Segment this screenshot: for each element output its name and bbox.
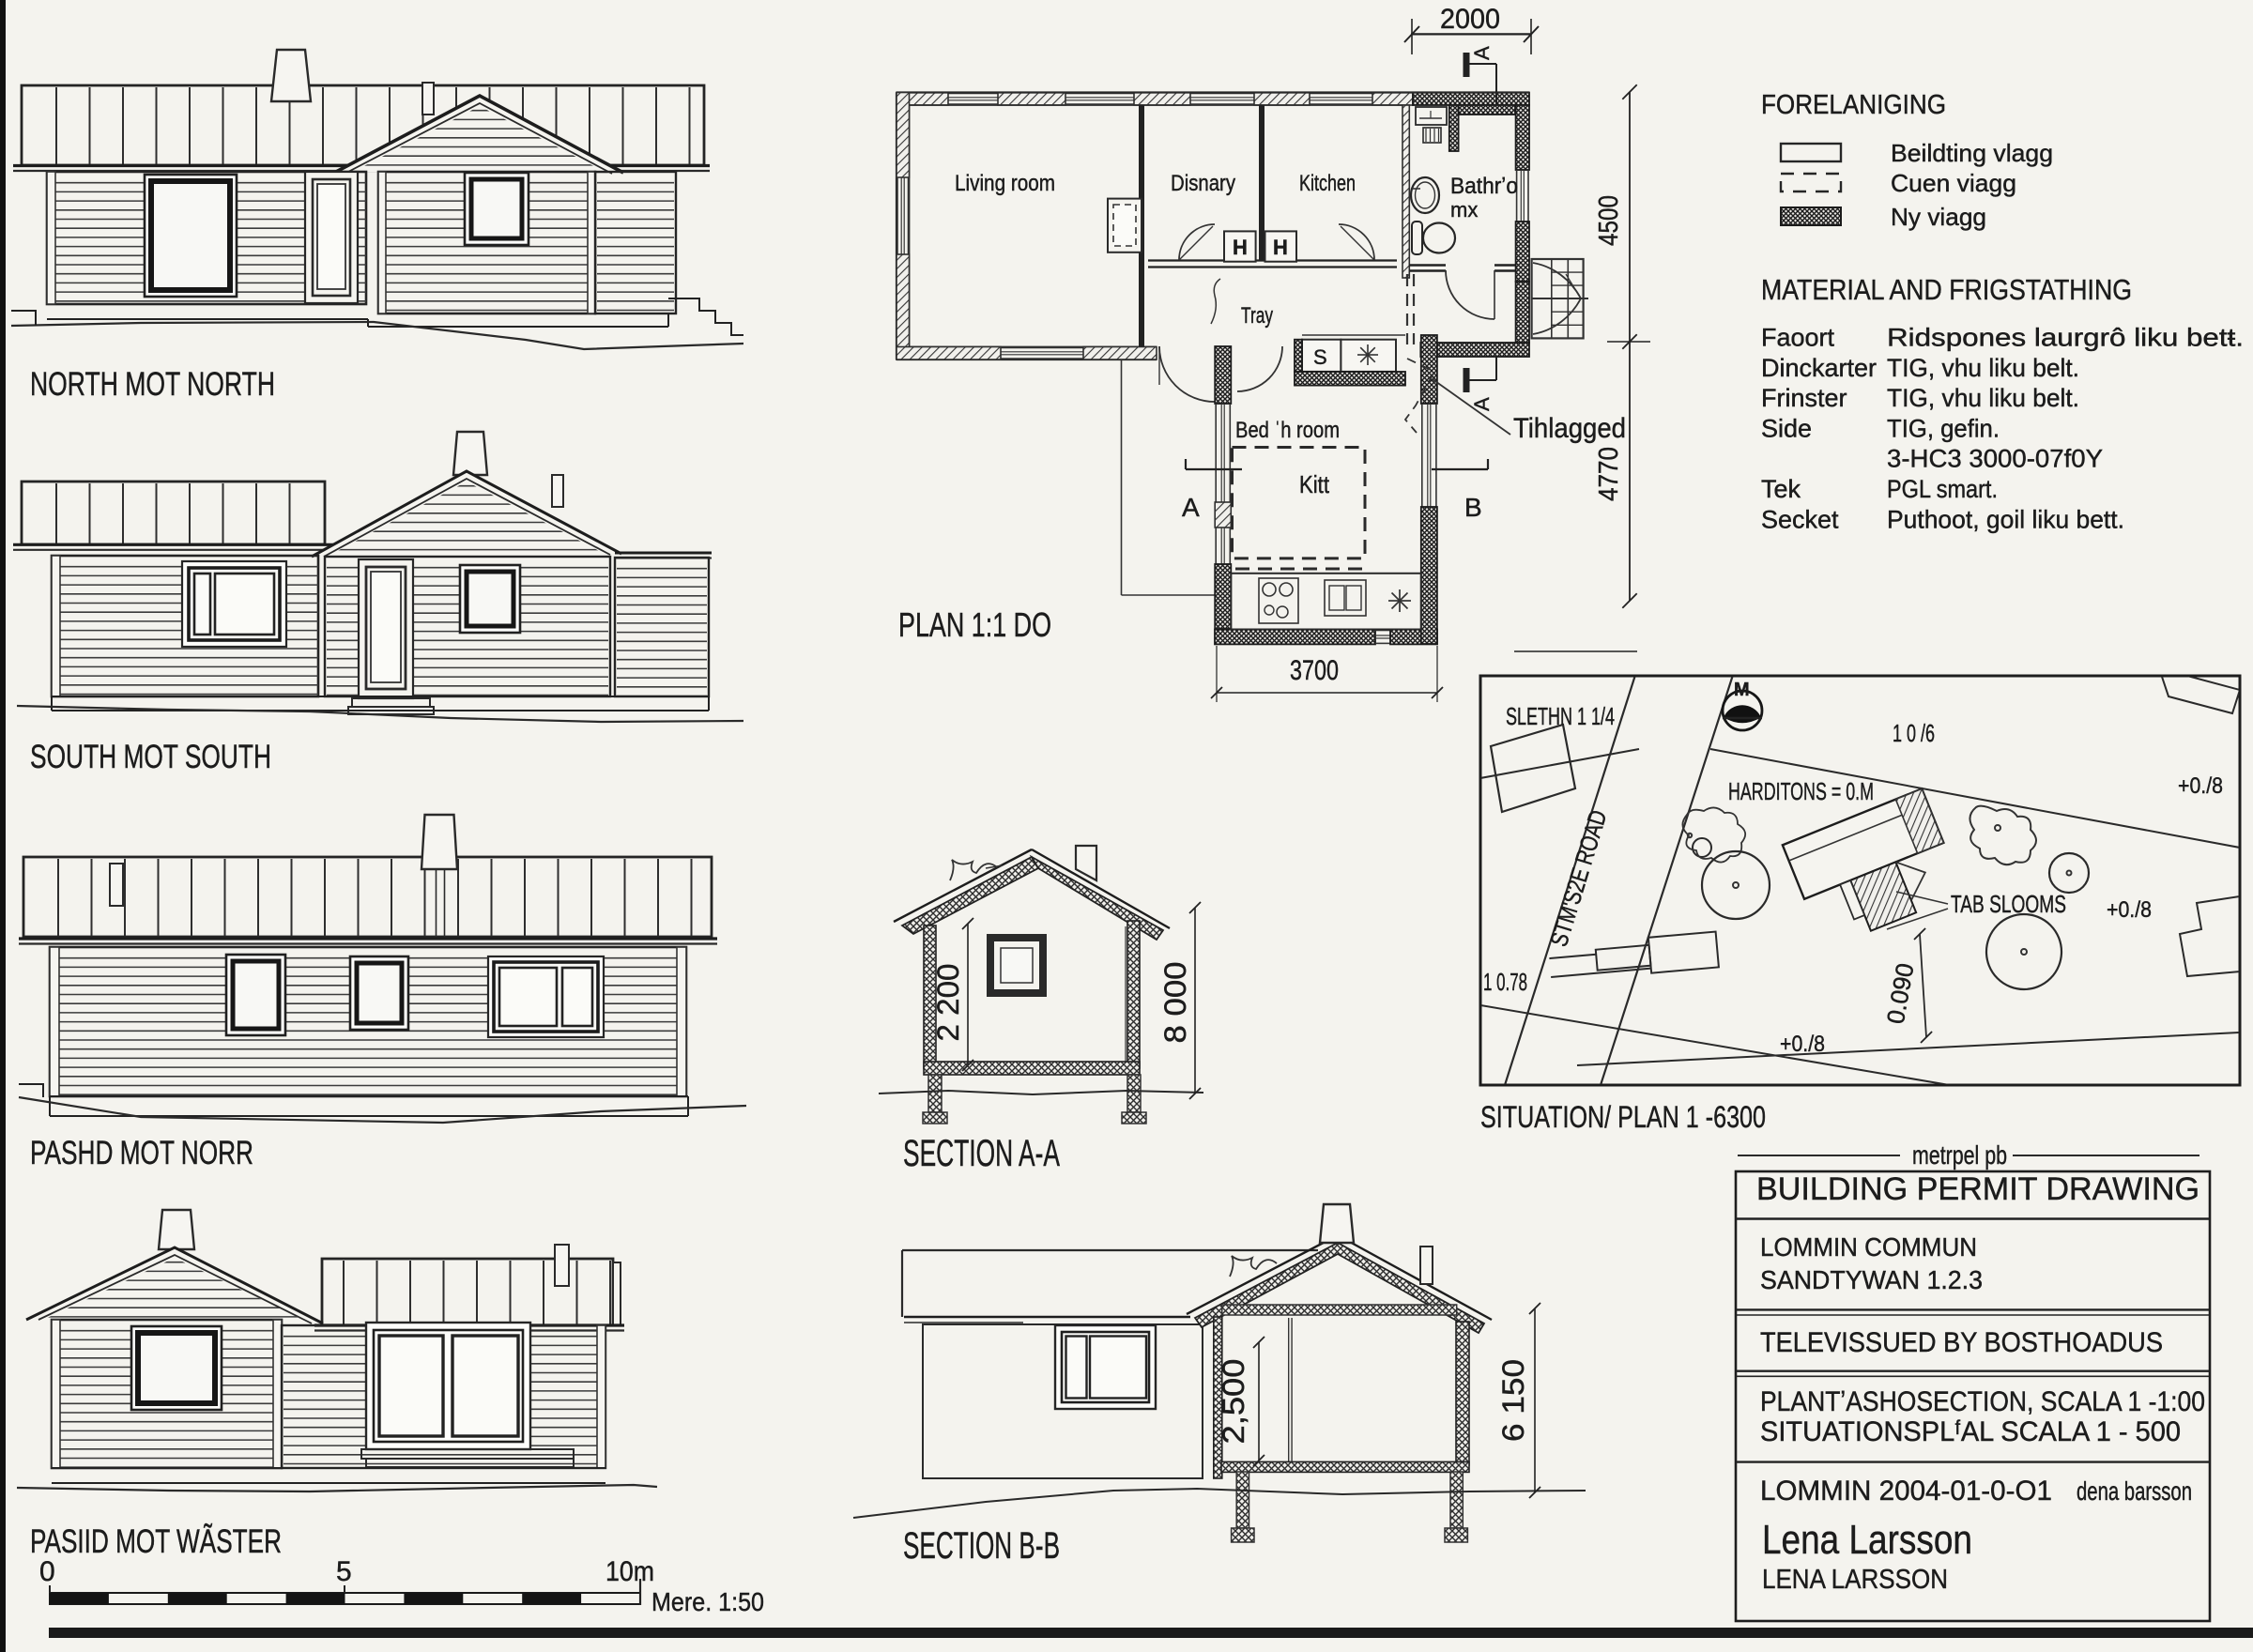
svg-text:BUILDING PERMIT DRAWING: BUILDING PERMIT DRAWING <box>1756 1171 2199 1207</box>
svg-text:Tek: Tek <box>1761 475 1801 503</box>
svg-text:Tihlagged: Tihlagged <box>1513 413 1626 444</box>
svg-text:1 0 /6: 1 0 /6 <box>1893 719 1935 747</box>
svg-text:LOMMIN 2004-01-0-O1: LOMMIN 2004-01-0-O1 <box>1760 1476 2052 1507</box>
svg-text:SECTION B-B: SECTION B-B <box>903 1525 1060 1567</box>
svg-text:LENA LARSSON: LENA LARSSON <box>1762 1565 1948 1595</box>
svg-text:10m: 10m <box>605 1556 654 1587</box>
svg-text:PLAN 1:1 DO: PLAN 1:1 DO <box>898 605 1051 644</box>
svg-text:+0./8: +0./8 <box>2178 773 2223 799</box>
svg-text:PGL smart.: PGL smart. <box>1887 475 1998 503</box>
svg-text:PLANTʼASHOSECTION, SCALA 1 -1:: PLANTʼASHOSECTION, SCALA 1 -1:00 <box>1760 1386 2205 1417</box>
svg-text:3700: 3700 <box>1290 655 1339 686</box>
svg-text:+0./8: +0./8 <box>2107 897 2152 923</box>
svg-text:Ridspones laurgrô liku betŧ.: Ridspones laurgrô liku betŧ. <box>1887 324 2244 352</box>
svg-text:Frinster: Frinster <box>1761 384 1847 412</box>
svg-text:SECTION A-A: SECTION A-A <box>903 1133 1060 1174</box>
svg-text:2,500: 2,500 <box>1217 1359 1250 1445</box>
svg-text:2 200: 2 200 <box>931 964 965 1042</box>
svg-text:SLETHN 1 1/4: SLETHN 1 1/4 <box>1506 702 1615 730</box>
svg-text:SOUTH MOT SOUTH: SOUTH MOT SOUTH <box>30 739 271 775</box>
svg-text:1 0.78: 1 0.78 <box>1483 968 1527 996</box>
svg-text:PASIID MOT WÃSTER: PASIID MOT WÃSTER <box>30 1523 282 1560</box>
svg-text:Bed ˈh room: Bed ˈh room <box>1235 418 1340 443</box>
svg-text:SANDTYWAN 1.2.3: SANDTYWAN 1.2.3 <box>1760 1265 1983 1294</box>
svg-text:mx: mx <box>1450 198 1478 222</box>
svg-text:FORELANIGING: FORELANIGING <box>1761 90 1946 120</box>
svg-text:Secket: Secket <box>1761 505 1839 533</box>
svg-text:8 000: 8 000 <box>1158 962 1192 1044</box>
svg-text:HARDITONS = 0.M: HARDITONS = 0.M <box>1728 777 1874 805</box>
svg-text:metrpel pb: metrpel pb <box>1912 1140 2007 1170</box>
svg-text:4770: 4770 <box>1594 447 1624 501</box>
svg-text:NORTH MOT NORTH: NORTH MOT NORTH <box>30 366 275 403</box>
svg-text:B: B <box>1464 493 1482 522</box>
svg-text:Cuen viagg: Cuen viagg <box>1891 169 2016 197</box>
svg-text:dena barsson: dena barsson <box>2077 1476 2192 1506</box>
svg-text:H: H <box>1233 236 1248 259</box>
svg-text:4500: 4500 <box>1594 195 1624 246</box>
svg-text:Side: Side <box>1761 414 1812 442</box>
svg-text:SITUATION/ PLAN 1 -6300: SITUATION/ PLAN 1 -6300 <box>1480 1100 1766 1134</box>
svg-text:Living room: Living room <box>955 171 1055 196</box>
svg-text:SITUATIONSPLᶠAL SCALA 1 - 500: SITUATIONSPLᶠAL SCALA 1 - 500 <box>1760 1416 2181 1447</box>
svg-text:S: S <box>1313 345 1327 369</box>
svg-text:TIG, vhu liku belt.: TIG, vhu liku belt. <box>1887 354 2079 382</box>
svg-text:A: A <box>1182 493 1200 522</box>
svg-text:3-HC3 3000-07f0Y: 3-HC3 3000-07f0Y <box>1887 445 2103 473</box>
svg-text:6 150: 6 150 <box>1496 1359 1530 1442</box>
svg-text:Beildting vlagg: Beildting vlagg <box>1891 139 2053 167</box>
svg-text:TELEVISSUED BY BOSTHOADUS: TELEVISSUED BY BOSTHOADUS <box>1760 1327 2163 1358</box>
svg-text:Tray: Tray <box>1241 303 1273 329</box>
svg-text:TIG, gefin.: TIG, gefin. <box>1887 414 2000 442</box>
svg-text:+0./8: +0./8 <box>1780 1032 1825 1057</box>
svg-text:Mere. 1:50: Mere. 1:50 <box>651 1587 764 1616</box>
svg-text:Dinckarter: Dinckarter <box>1761 354 1877 382</box>
svg-text:TIG, vhu liku belt.: TIG, vhu liku belt. <box>1887 384 2079 412</box>
svg-text:5: 5 <box>336 1556 352 1587</box>
svg-text:Faoort: Faoort <box>1761 324 1835 352</box>
svg-text:PASHD MOT NORR: PASHD MOT NORR <box>30 1135 253 1171</box>
svg-text:TAB SLOOMS: TAB SLOOMS <box>1951 890 2066 918</box>
svg-text:A: A <box>1470 46 1494 60</box>
svg-text:Bathrʼo: Bathrʼo <box>1450 174 1518 199</box>
svg-text:LOMMIN COMMUN: LOMMIN COMMUN <box>1760 1232 1977 1262</box>
svg-text:H: H <box>1273 236 1288 259</box>
svg-text:MATERIAL AND FRIGSTATHING: MATERIAL AND FRIGSTATHING <box>1761 273 2132 306</box>
svg-text:Ny viagg: Ny viagg <box>1891 203 1986 231</box>
svg-text:0: 0 <box>39 1556 55 1587</box>
svg-text:Puthoot, goil liku bett.: Puthoot, goil liku bett. <box>1887 505 2124 533</box>
svg-text:Kitt: Kitt <box>1299 470 1330 498</box>
svg-text:M: M <box>1734 680 1750 700</box>
svg-text:Kitchen: Kitchen <box>1299 171 1356 196</box>
svg-text:2000: 2000 <box>1440 4 1500 35</box>
svg-text:Lena Larsson: Lena Larsson <box>1762 1517 1972 1563</box>
svg-text:Disnary: Disnary <box>1171 171 1235 196</box>
